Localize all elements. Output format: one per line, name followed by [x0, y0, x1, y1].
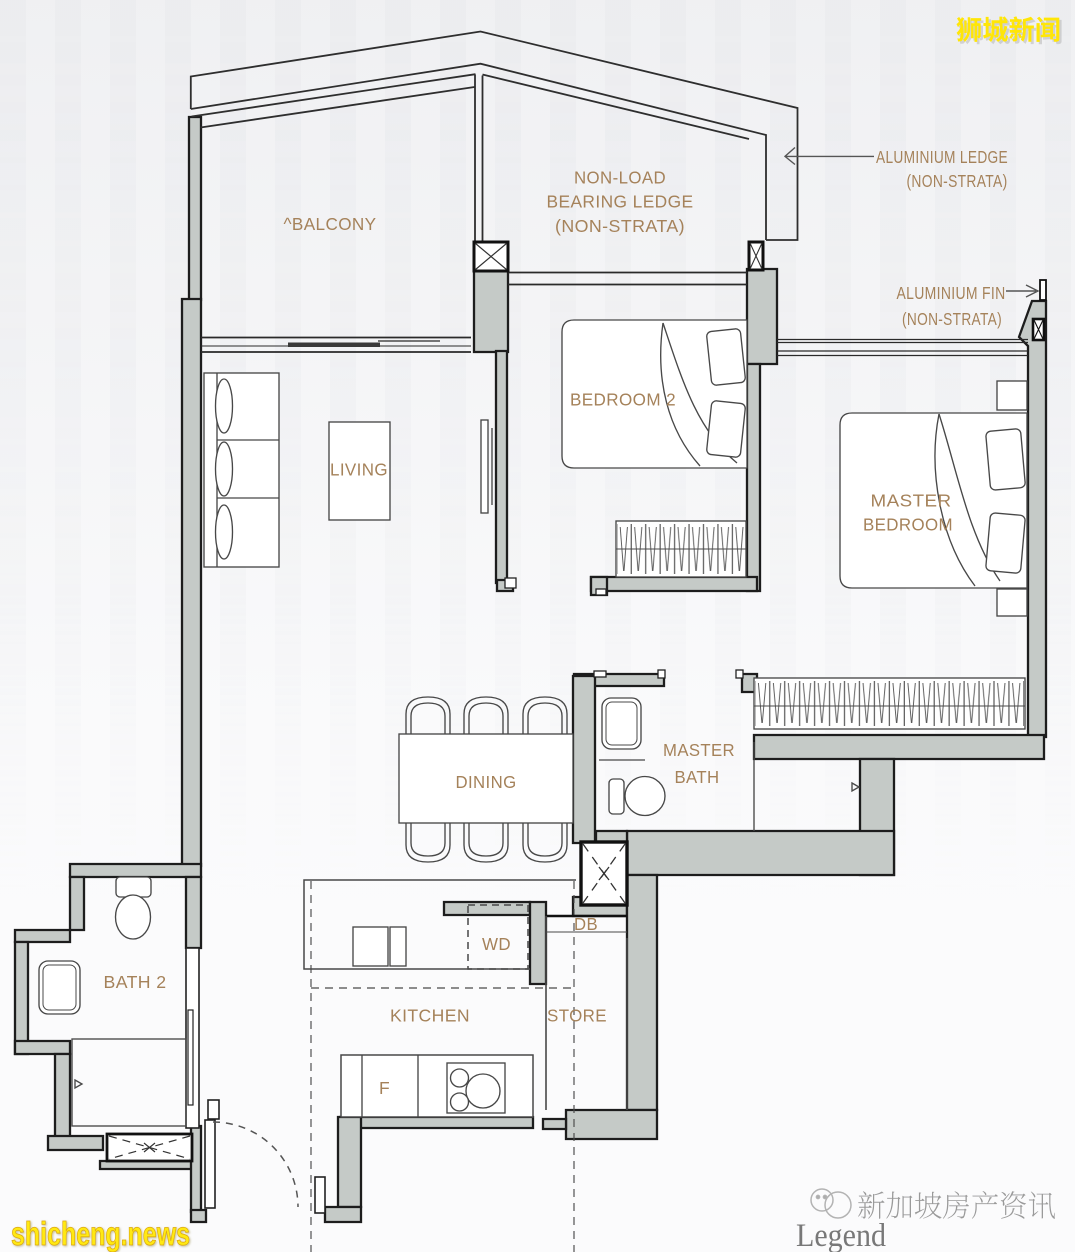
svg-text:BEDROOM: BEDROOM: [863, 515, 953, 535]
svg-text:Legend: Legend: [796, 1218, 886, 1252]
svg-text:(NON-STRATA): (NON-STRATA): [555, 216, 685, 236]
svg-text:DINING: DINING: [456, 772, 517, 792]
svg-text:MASTER: MASTER: [663, 740, 735, 760]
svg-text:^BALCONY: ^BALCONY: [284, 214, 377, 234]
svg-text:MASTER: MASTER: [871, 491, 952, 511]
svg-text:shicheng.news: shicheng.news: [11, 1215, 190, 1252]
svg-text:ALUMINIUM LEDGE: ALUMINIUM LEDGE: [876, 147, 1008, 167]
svg-text:(NON-STRATA): (NON-STRATA): [902, 309, 1002, 329]
svg-text:ALUMINIUM FIN: ALUMINIUM FIN: [897, 283, 1006, 303]
svg-text:(NON-STRATA): (NON-STRATA): [907, 171, 1008, 191]
svg-text:DB: DB: [574, 914, 598, 934]
svg-text:BEDROOM 2: BEDROOM 2: [570, 390, 676, 410]
svg-text:BEARING LEDGE: BEARING LEDGE: [547, 192, 694, 212]
svg-text:BATH: BATH: [675, 767, 720, 787]
svg-text:BATH 2: BATH 2: [104, 972, 167, 992]
svg-text:F: F: [379, 1078, 390, 1098]
svg-text:NON-LOAD: NON-LOAD: [574, 168, 666, 188]
svg-text:KITCHEN: KITCHEN: [390, 1006, 470, 1026]
svg-text:LIVING: LIVING: [330, 460, 388, 480]
svg-text:WD: WD: [482, 934, 511, 954]
svg-text:STORE: STORE: [547, 1006, 607, 1026]
